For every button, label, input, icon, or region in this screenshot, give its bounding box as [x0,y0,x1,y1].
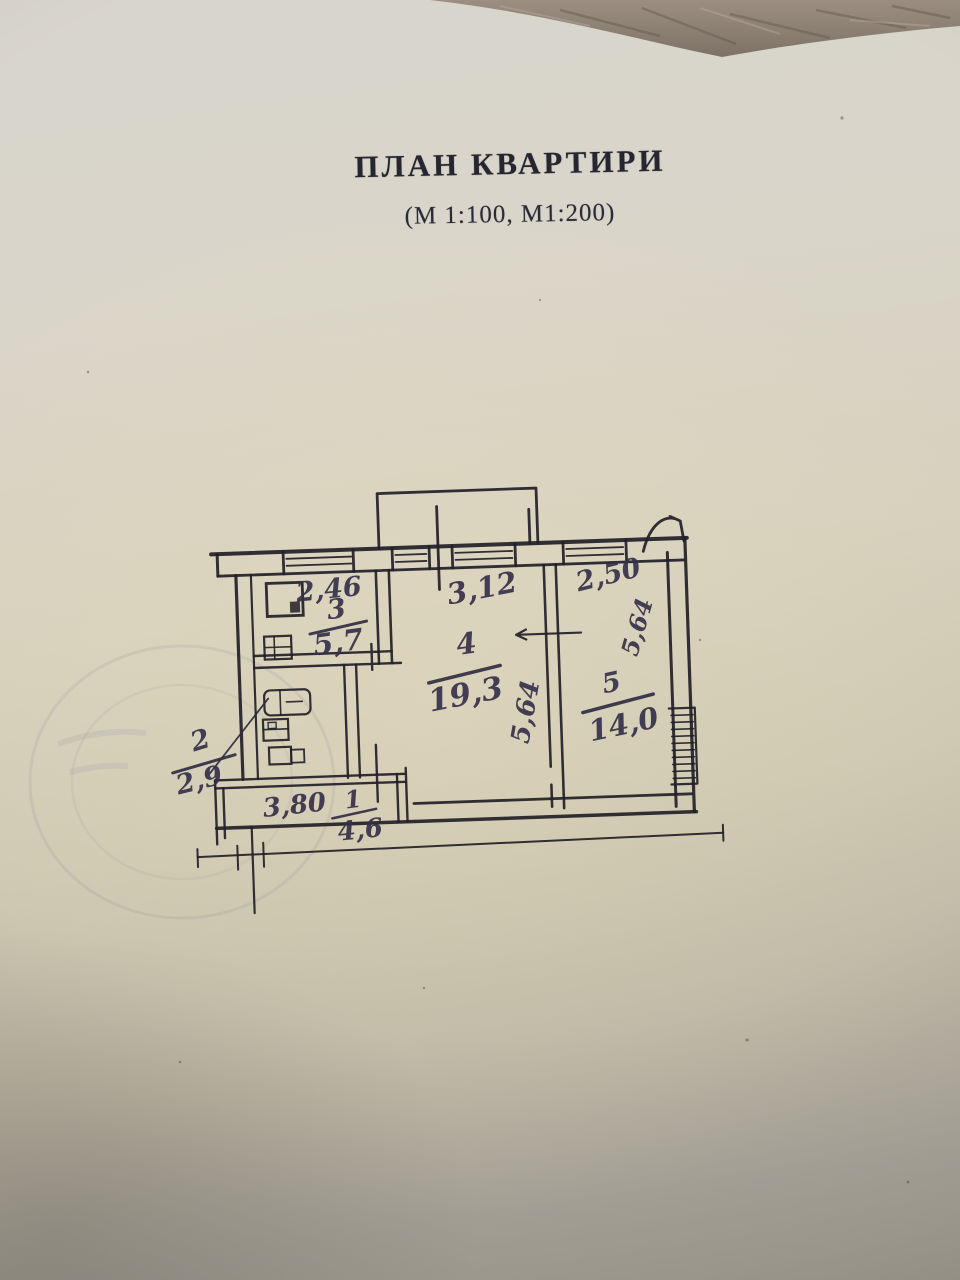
floor-plan: 2,46 3 5,7 3,12 4 19,3 5,64 2,50 5,64 5 … [0,0,960,1280]
room-2-area: 2,9 [172,760,226,802]
dim-hall-width: 3,80 [261,787,327,823]
floor-plan-drawing: 2,46 3 5,7 3,12 4 19,3 5,64 2,50 5,64 5 … [162,482,725,916]
room-4-area: 19,3 [425,670,506,720]
room-3-area: 5,7 [311,622,366,663]
dim-bedroom-width: 2,50 [572,552,644,598]
dim-bedroom-depth: 5,64 [615,595,659,659]
room-1-area: 4,6 [336,813,384,848]
room-5-number: 5 [599,666,624,700]
corner-arrow-mark [642,516,684,551]
room-4-number: 4 [454,625,479,661]
document-photo: ПЛАН КВАРТИРИ (М 1:100, М1:200) [0,0,960,1280]
wood-table-corner [430,0,960,57]
dim-living-depth: 5,64 [506,678,547,746]
room-1-number: 1 [343,784,363,815]
room-3-number: 3 [325,593,347,626]
room-2-number: 2 [186,723,214,758]
paper-specks [87,116,910,1183]
dim-living-width: 3,12 [444,565,520,612]
